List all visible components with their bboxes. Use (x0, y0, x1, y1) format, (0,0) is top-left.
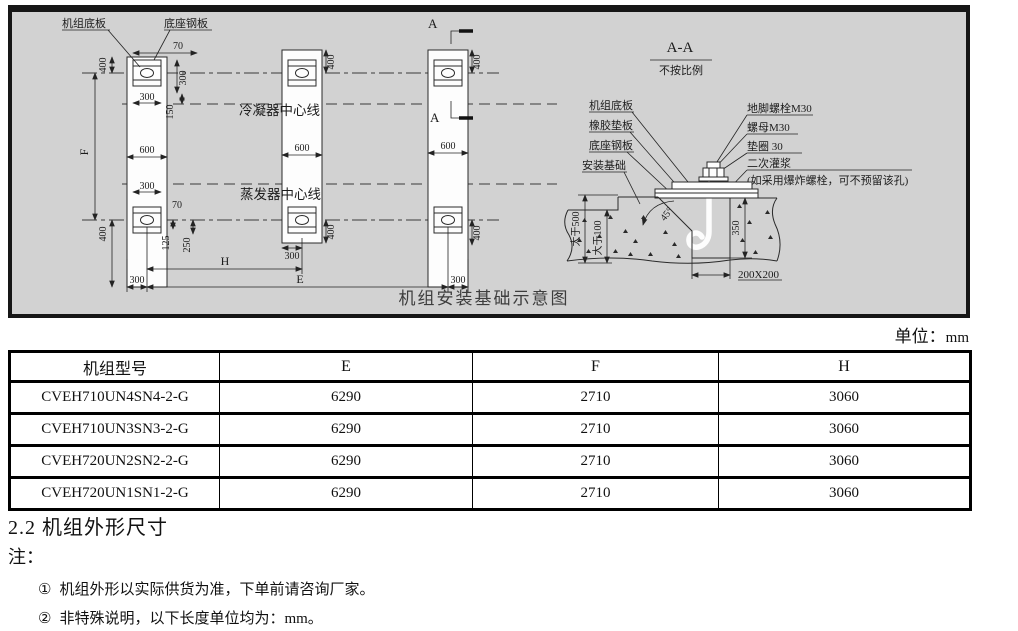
model-dimensions-table: 机组型号 E F H CVEH710UN4SN4-2-G 6290 2710 3… (8, 350, 972, 511)
dim-300: 300 (285, 251, 300, 262)
h-cell: 3060 (719, 446, 971, 478)
foundation-plan-drawing: 机组底板 底座钢板 冷凝器中心线 蒸发器中心线 A A (12, 12, 964, 312)
foundation-drawing-panel: 机组底板 底座钢板 冷凝器中心线 蒸发器中心线 A A (8, 5, 970, 318)
note-item: ②非特殊说明，以下长度单位均为：mm。 (38, 607, 323, 628)
washer (699, 177, 728, 181)
dim-gt100: 大于100 (591, 221, 604, 256)
dim-45deg: 45° (658, 206, 675, 224)
table-row: CVEH710UN4SN4-2-G 6290 2710 3060 (10, 382, 971, 414)
section-letter-a: A (430, 110, 440, 125)
dim-gt500: 大于500 (569, 212, 582, 247)
expansion-bolt-note: (如采用爆炸螺栓，可不预留该孔) (747, 173, 909, 187)
header-model: 机组型号 (10, 352, 220, 382)
dim-600: 600 (295, 143, 310, 154)
dim-300: 300 (140, 92, 155, 103)
dim-600: 600 (441, 141, 456, 152)
e-cell: 6290 (220, 446, 473, 478)
dim-E: E (296, 272, 303, 286)
note-text: 机组外形以实际供货为准，下单前请咨询厂家。 (59, 582, 374, 598)
nut (703, 168, 724, 177)
section-cut-marker-top: A (428, 16, 473, 44)
dim-400: 400 (326, 225, 337, 240)
dim-400: 400 (472, 226, 483, 241)
units-value: mm (946, 330, 969, 346)
dim-400: 400 (98, 58, 109, 73)
rubber-pad-label: 橡胶垫板 (589, 118, 633, 132)
nut-label: 螺母M30 (747, 121, 790, 134)
secondary-grouting-label: 二次灌浆 (747, 156, 791, 170)
h-cell: 3060 (719, 414, 971, 446)
section-base-steel-plate-label: 底座钢板 (589, 138, 633, 152)
dim-H: H (221, 254, 230, 268)
model-cell: CVEH720UN1SN1-2-G (10, 478, 220, 510)
e-cell: 6290 (220, 414, 473, 446)
note-bullet: ② (38, 611, 51, 627)
h-cell: 3060 (719, 382, 971, 414)
dim-150: 150 (165, 105, 176, 120)
section-heading: 2.2 机组外形尺寸 (8, 511, 168, 540)
units-label: 单位： (895, 327, 946, 346)
page: 机组底板 底座钢板 冷凝器中心线 蒸发器中心线 A A (0, 0, 1018, 631)
table-header-row: 机组型号 E F H (10, 352, 971, 382)
section-unit-base-plate-label: 机组底板 (589, 98, 633, 112)
dim-70: 70 (172, 200, 182, 211)
h-cell: 3060 (719, 478, 971, 510)
table-row: CVEH710UN3SN3-2-G 6290 2710 3060 (10, 414, 971, 446)
anchor-plate (434, 60, 462, 86)
e-cell: 6290 (220, 478, 473, 510)
f-cell: 2710 (473, 382, 719, 414)
model-cell: CVEH710UN3SN3-2-G (10, 414, 220, 446)
dim-F: F (77, 148, 91, 155)
condenser-centerline-label: 冷凝器中心线 (239, 103, 320, 118)
header-e: E (220, 352, 473, 382)
units-note: 单位：mm (895, 322, 969, 347)
header-f: F (473, 352, 719, 382)
drawing-title: 机组安装基础示意图 (399, 289, 570, 308)
dim-400: 400 (472, 55, 483, 70)
base-steel-plate-label: 底座钢板 (164, 16, 208, 30)
f-cell: 2710 (473, 414, 719, 446)
section-unit-base-plate (672, 182, 752, 189)
model-cell: CVEH720UN2SN2-2-G (10, 446, 220, 478)
model-cell: CVEH710UN4SN4-2-G (10, 382, 220, 414)
note-item: ①机组外形以实际供货为准，下单前请咨询厂家。 (38, 578, 374, 599)
washer-label: 垫圈 30 (747, 139, 783, 153)
section-scale-note: 不按比例 (659, 63, 703, 77)
dim-350: 350 (731, 221, 742, 236)
dim-400: 400 (326, 55, 337, 70)
section-base-steel-plate (655, 193, 758, 198)
bolt-stud (707, 162, 720, 168)
table-row: CVEH720UN1SN1-2-G 6290 2710 3060 (10, 478, 971, 510)
notes-label: 注： (8, 543, 44, 569)
evaporator-centerline-label: 蒸发器中心线 (240, 187, 321, 202)
e-cell: 6290 (220, 382, 473, 414)
header-h: H (719, 352, 971, 382)
dim-300: 300 (130, 275, 145, 286)
dim-300: 300 (140, 181, 155, 192)
dim-70: 70 (173, 41, 183, 52)
installation-foundation-label: 安装基础 (582, 158, 626, 172)
anchor-plate (288, 207, 316, 233)
anchor-bolt-label: 地脚螺栓M30 (747, 101, 812, 115)
unit-base-plate-label: 机组底板 (62, 16, 106, 30)
f-cell: 2710 (473, 478, 719, 510)
dim-200x200: 200X200 (738, 269, 779, 281)
f-cell: 2710 (473, 446, 719, 478)
dim-300: 300 (451, 275, 466, 286)
section-rubber-pad (655, 189, 758, 193)
dim-125: 125 (161, 236, 172, 251)
section-title: A-A (667, 40, 694, 56)
anchor-plate (288, 60, 316, 86)
table-row: CVEH720UN2SN2-2-G 6290 2710 3060 (10, 446, 971, 478)
dim-300: 300 (178, 71, 189, 86)
dim-400: 400 (98, 227, 109, 242)
note-text: 非特殊说明，以下长度单位均为：mm。 (59, 611, 322, 627)
dim-250: 250 (182, 238, 193, 253)
section-view: A-A 不按比例 机组底板 橡胶垫板 底座钢板 安装基础 地脚螺栓M30 (565, 40, 912, 281)
section-letter-a: A (428, 16, 438, 31)
note-bullet: ① (38, 582, 51, 598)
anchor-bolt-assembly (689, 162, 728, 247)
dim-600: 600 (140, 145, 155, 156)
